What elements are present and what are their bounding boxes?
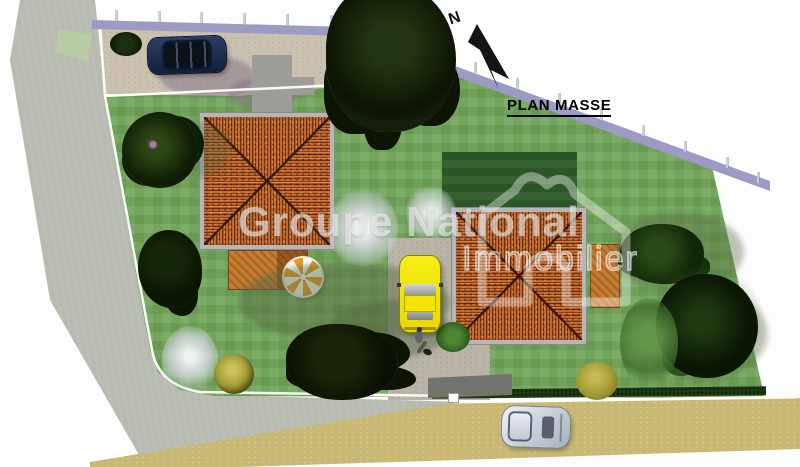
fence-post <box>757 172 759 183</box>
car-windshield <box>404 284 436 296</box>
tree-round-west <box>122 112 198 188</box>
car-hood-line <box>559 414 562 442</box>
car-rear-window <box>542 416 555 438</box>
fence-post <box>200 12 202 23</box>
tree-large-north <box>326 0 456 132</box>
car-silver-south <box>501 406 570 448</box>
pedestrian-head <box>417 327 422 332</box>
tree-blossom-dots <box>148 140 158 149</box>
tree-cluster-south <box>286 324 398 400</box>
car-rear-window <box>407 312 433 320</box>
north-arrow-icon <box>468 24 514 90</box>
fence-post <box>516 78 518 89</box>
gate-post <box>449 394 458 402</box>
fence-post <box>115 10 117 21</box>
car-mirror <box>397 283 401 287</box>
shrub-flowering-southwest <box>162 326 218 394</box>
watermark-line1: Groupe National <box>238 198 580 246</box>
fence-post <box>243 13 245 24</box>
car-mirror <box>439 283 443 287</box>
car-navy-north <box>147 36 226 75</box>
watermark-line2: Immobilier <box>462 240 639 279</box>
bush-green-by-house-east <box>436 322 470 352</box>
page-title: PLAN MASSE <box>507 97 611 117</box>
car-roof <box>405 296 435 311</box>
car-windows <box>164 41 211 69</box>
car-windshield <box>510 413 531 440</box>
fence-post <box>726 157 728 168</box>
bush-yellow-southwest <box>214 354 254 394</box>
bush-dark-west <box>138 230 202 308</box>
fence-post <box>684 141 686 152</box>
fence-post <box>286 14 288 25</box>
fence-post <box>158 11 160 22</box>
fence-post <box>642 125 644 136</box>
site-plan-canvas: N PLAN MASSE Groupe National Immobilier <box>0 0 800 467</box>
bush-small-north <box>110 32 142 56</box>
car-yellow-driveway <box>400 256 440 332</box>
bush-yellow-southeast <box>576 362 618 400</box>
